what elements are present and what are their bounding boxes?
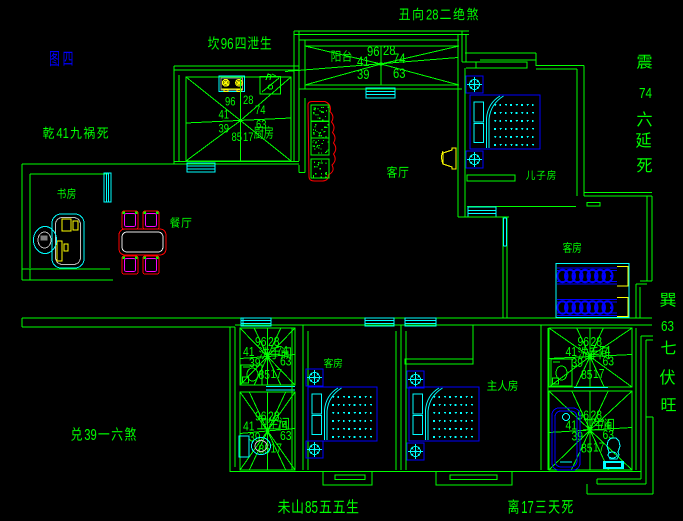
svg-text:85: 85 xyxy=(581,441,593,456)
svg-text:41: 41 xyxy=(56,126,69,142)
svg-text:28: 28 xyxy=(243,95,254,107)
svg-text:17: 17 xyxy=(593,366,605,381)
svg-text:74: 74 xyxy=(393,50,406,66)
svg-text:96: 96 xyxy=(578,334,590,349)
svg-text:96: 96 xyxy=(578,408,590,423)
svg-text:39: 39 xyxy=(84,426,97,444)
svg-text:96: 96 xyxy=(221,35,234,53)
svg-text:96: 96 xyxy=(255,409,267,424)
svg-text:85: 85 xyxy=(581,367,593,382)
svg-text:41: 41 xyxy=(219,110,230,122)
svg-text:63: 63 xyxy=(393,65,406,81)
svg-text:85: 85 xyxy=(232,132,243,144)
svg-text:17: 17 xyxy=(593,440,605,455)
svg-text:17: 17 xyxy=(271,441,283,456)
svg-text:96: 96 xyxy=(225,97,236,109)
svg-text:85: 85 xyxy=(305,497,318,517)
svg-text:17: 17 xyxy=(271,366,283,381)
svg-text:28: 28 xyxy=(426,7,439,24)
svg-text:39: 39 xyxy=(357,66,370,82)
svg-text:74: 74 xyxy=(255,105,266,117)
svg-text:17: 17 xyxy=(243,132,254,144)
svg-text:96: 96 xyxy=(255,334,267,349)
svg-text:17: 17 xyxy=(521,497,534,517)
svg-text:39: 39 xyxy=(219,124,230,136)
svg-text:85: 85 xyxy=(259,367,271,382)
svg-text:63: 63 xyxy=(661,318,674,335)
svg-text:74: 74 xyxy=(639,85,652,102)
